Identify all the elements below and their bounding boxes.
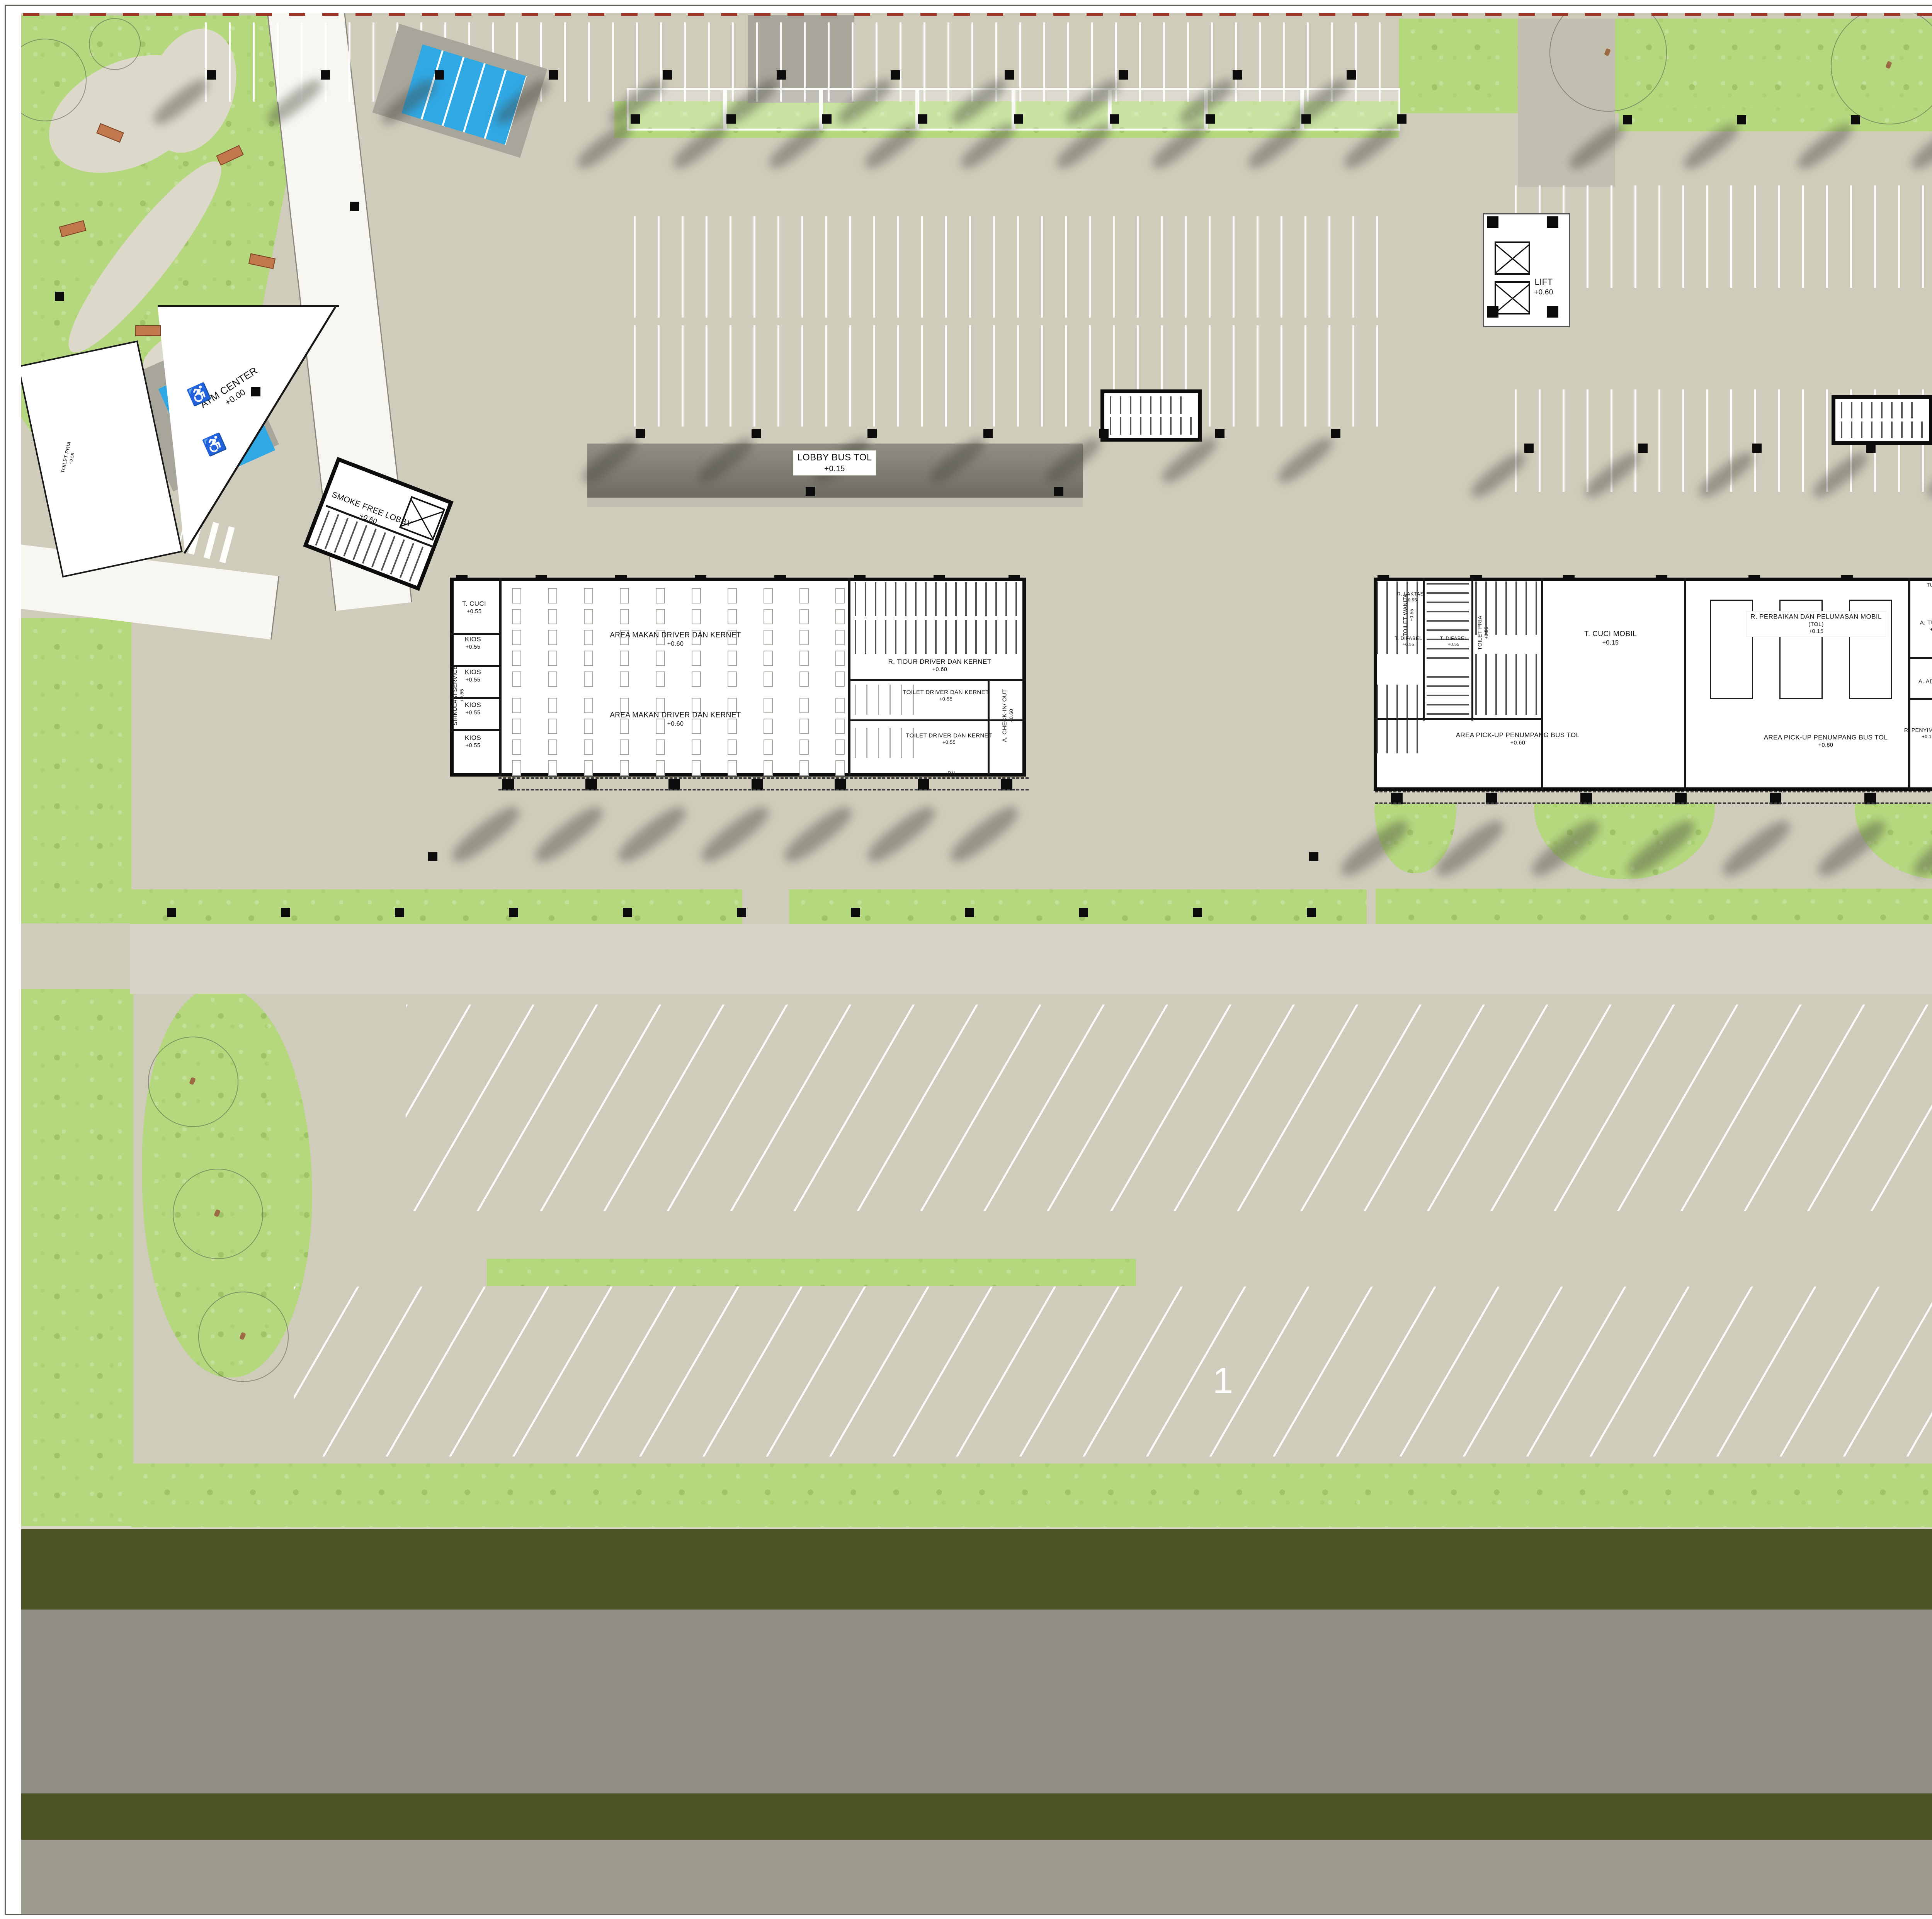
dining-table [512,671,521,687]
interior-wall [1471,578,1473,721]
column [1487,306,1498,318]
dining-table [764,739,773,755]
dining-table [584,609,593,624]
label-t-difabel-1: T. DIFABEL+0.55 [1395,636,1422,648]
dining-table [764,760,773,776]
site-boundary-line [23,13,1932,16]
dining-table [548,698,557,713]
dining-table [620,588,629,603]
stair-hatch [1110,417,1194,435]
canopy-colonnade [1375,791,1932,804]
label-kios-4: KIOS+0.55 [465,734,481,749]
label-a-tunggu-1: A. TUNGGU+0.15 [1920,619,1932,633]
lift-cab [1495,281,1530,314]
bollard [1737,115,1746,124]
dining-table [656,760,665,776]
bollard [509,908,518,917]
green-strip-road-1 [130,889,742,926]
dining-table [799,651,809,666]
dining-table [548,760,557,776]
bollard [167,908,176,917]
dining-table [799,609,809,624]
dining-table [656,651,665,666]
label-area-marker-1: 1 [1213,1358,1233,1405]
bollard [918,114,927,124]
dining-table [764,671,773,687]
label-r-laktasi: R. LAKTASI+0.55 [1397,591,1425,603]
dining-table [584,630,593,645]
dining-table [512,760,521,776]
bollard [435,70,444,80]
dining-table [692,760,701,776]
toll-road [21,1610,1932,1793]
bus-parking-field [406,1005,1932,1211]
bollard [623,908,632,917]
label-t-cuci: T. CUCI+0.55 [462,600,486,615]
hatch-area [855,620,1023,654]
bollard [777,70,786,80]
bollard [891,70,900,80]
bollard [350,202,359,211]
dining-table [512,719,521,734]
sheet-margin [0,0,21,1919]
park-bench [135,325,161,336]
dining-table [799,630,809,645]
dining-table [764,609,773,624]
bollard [1206,114,1215,124]
interior-wall [1908,657,1932,659]
bollard [321,70,330,80]
bollard [1193,908,1202,917]
bollard [1623,115,1632,124]
interior-wall [1541,578,1543,790]
dining-table [584,651,593,666]
dining-table [656,609,665,624]
bollard [1014,114,1023,124]
interior-wall [450,633,499,635]
dining-table [692,609,701,624]
bollard [965,908,974,917]
bollard [1301,114,1311,124]
interior-wall [848,719,1026,721]
dining-table [799,588,809,603]
interior-wall [848,578,850,777]
label-kios-3: KIOS+0.55 [465,701,481,716]
bollard [207,70,216,80]
dining-table [692,739,701,755]
column [1547,306,1558,318]
stair-pavilion [1832,395,1932,445]
dining-table [512,609,521,624]
label-lift: LIFT+0.60 [1534,277,1553,297]
dining-table [620,609,629,624]
label-r-penyimpanan-2: R. PENYIMPANAN+0.15 [1904,727,1932,739]
dining-table [835,671,845,687]
parking-stall-row [634,216,1396,318]
bollard [1307,908,1316,917]
label-sirkulasi-service: SIRKULASI SERVICE+0.55 [451,666,465,726]
bollard [726,114,736,124]
dining-table [548,651,557,666]
dining-table [584,719,593,734]
dining-table [835,609,845,624]
dining-table [799,698,809,713]
label-toilet-pria: TOILET PRIA+0.55 [1476,615,1489,650]
dining-table [799,760,809,776]
dining-table [835,698,845,713]
bollard [549,70,558,80]
dining-table [548,719,557,734]
dining-table [835,739,845,755]
label-turun-1: TURUN [1927,582,1932,589]
bollard [867,429,877,438]
dining-table [656,739,665,755]
bollard [1638,444,1648,453]
stair-hatch [1841,402,1915,418]
label-kios-2: KIOS+0.55 [465,668,481,683]
dining-table [692,671,701,687]
dining-table [764,630,773,645]
column [1547,216,1558,228]
bollard [395,908,404,917]
interior-wall [848,679,1026,681]
bollard [1215,429,1225,438]
label-area-makan-2: AREA MAKAN DRIVER DAN KERNET+0.60 [610,711,741,728]
label-dn: DN [947,770,955,777]
interior-wall [1684,578,1686,790]
label-area-makan-1: AREA MAKAN DRIVER DAN KERNET+0.60 [610,631,741,648]
dining-table [728,739,737,755]
stair-pavilion [1100,389,1202,442]
sheet-margin [0,1915,1932,1919]
bollard [1099,429,1109,438]
label-lobby-bus-tol: LOBBY BUS TOL+0.15 [793,451,876,475]
bollard [1005,70,1014,80]
label-r-perbaikan-mobil: R. PERBAIKAN DAN PELUMASAN MOBIL(TOL)+0.… [1747,612,1886,637]
bollard [737,908,746,917]
dining-table [620,739,629,755]
dining-table [728,651,737,666]
atm-boundary-line [158,305,339,307]
dining-table [799,671,809,687]
internal-road [130,924,1932,994]
dining-table [584,698,593,713]
bus-parking-field [294,1287,1932,1457]
label-toilet-driver-1: TOILET DRIVER DAN KERNET+0.55 [903,688,989,702]
dining-table [656,671,665,687]
dining-table [692,588,701,603]
dining-table [764,719,773,734]
bollard [55,292,64,301]
dining-table [799,719,809,734]
bollard [851,908,860,917]
dining-table [764,588,773,603]
hatch-area [855,582,1023,616]
tree-canopy [89,18,141,70]
label-t-difabel-2: T. DIFABEL+0.55 [1440,636,1467,648]
dining-table [728,588,737,603]
bollard [428,852,437,861]
bollard [822,114,832,124]
bollard [1119,70,1128,80]
green-finger [487,1259,1136,1286]
bollard [752,429,761,438]
bollard [1110,114,1119,124]
bollard [1524,444,1534,453]
dining-table [799,739,809,755]
dining-table [728,760,737,776]
sheet-margin [0,0,1932,13]
bottom-green-strip [131,1463,1932,1527]
left-margin-grass-1 [21,618,131,923]
label-check-in-out: A. CHECK-IN/ OUT+0.60 [1001,689,1015,742]
dining-table [692,651,701,666]
dining-table [656,588,665,603]
dining-table [512,651,521,666]
column [1487,216,1498,228]
bollard [806,487,815,496]
dining-table [620,671,629,687]
interior-wall [450,729,499,731]
label-toilet-driver-2: TOILET DRIVER DAN KERNET+0.55 [906,732,992,746]
bollard [1054,487,1063,496]
hatch-area [1376,685,1421,753]
label-pickup-2: AREA PICK-UP PENUMPANG BUS TOL+0.60 [1764,733,1888,749]
dining-table [548,630,557,645]
interior-wall [1908,578,1910,790]
label-kios-1: KIOS+0.55 [465,635,481,651]
dining-table [584,760,593,776]
stair-hatch [1110,396,1184,414]
walk-under-lobby [587,498,1083,507]
bollard [1866,444,1876,453]
bollard [1752,444,1762,453]
lift-cab [1495,241,1530,275]
bollard [1233,70,1242,80]
label-pickup-1: AREA PICK-UP PENUMPANG BUS TOL+0.60 [1456,731,1580,746]
parking-stall-row [634,325,1396,427]
dining-table [835,588,845,603]
dining-table [835,651,845,666]
bollard [281,908,290,917]
hatch-area [1427,671,1469,715]
green-strip-road-2 [789,889,1367,926]
dining-table [835,719,845,734]
interior-wall [1908,698,1932,700]
dining-table [548,739,557,755]
bollard [636,429,645,438]
dining-table [620,760,629,776]
dining-table [548,609,557,624]
interior-wall [499,578,502,777]
bollard [1079,908,1088,917]
olive-strip-1 [21,1529,1932,1610]
dining-table [584,588,593,603]
bollard [663,70,672,80]
dining-table [764,698,773,713]
bollard [1397,114,1406,124]
site-plan: ATM CENTER+0.00TOILET PRIA+0.55SMOKE FRE… [0,0,1932,1919]
bollard [1309,852,1318,861]
bollard [1331,429,1340,438]
bollard [1347,70,1356,80]
dining-table [584,671,593,687]
bottom-road [21,1840,1932,1915]
dining-table [835,630,845,645]
dining-table [512,698,521,713]
dining-table [512,588,521,603]
dining-table [728,609,737,624]
stair-hatch [1841,422,1925,438]
parking-stall-row [1515,185,1932,288]
label-a-administrasi-1: A. ADMINISTRASI+0.15 [1918,678,1932,692]
dining-table [620,651,629,666]
bollard [1851,115,1860,124]
dining-table [728,671,737,687]
dining-table [512,739,521,755]
drawing-sheet: ATM CENTER+0.00TOILET PRIA+0.55SMOKE FRE… [0,0,1932,1919]
bollard [631,114,640,124]
label-t-cuci-mobil: T. CUCI MOBIL+0.15 [1584,630,1637,647]
olive-strip-2 [21,1793,1932,1840]
dining-table [835,760,845,776]
canopy-colonnade [498,777,1029,790]
dining-table [548,588,557,603]
dining-table [548,671,557,687]
dining-table [584,739,593,755]
left-margin-grass-2 [21,989,133,1526]
label-r-tidur: R. TIDUR DRIVER DAN KERNET+0.60 [888,658,991,673]
dining-table [512,630,521,645]
hatch-area [1475,654,1538,715]
bollard [983,429,993,438]
dining-table [764,651,773,666]
